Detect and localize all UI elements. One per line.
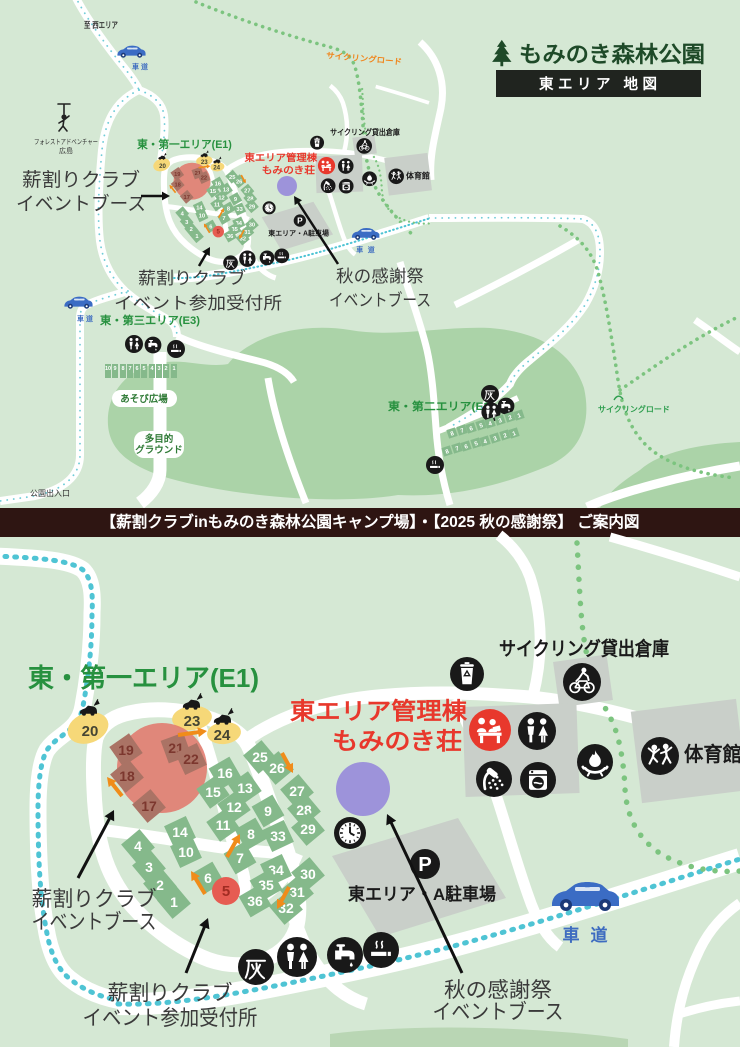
svg-text:あそび広場: あそび広場: [120, 393, 168, 405]
svg-text:車道: 車道: [132, 62, 150, 71]
svg-text:8: 8: [121, 366, 124, 372]
svg-text:東・第二エリア(E2): 東・第二エリア(E2): [388, 399, 494, 413]
svg-text:フォレストアドベンチャー: フォレストアドベンチャー: [34, 138, 98, 146]
svg-text:薪割りクラブ: 薪割りクラブ: [108, 982, 233, 1005]
svg-text:サイクリングロード: サイクリングロード: [598, 404, 670, 414]
svg-text:広島: 広島: [59, 146, 73, 155]
svg-text:イベント参加受付所: イベント参加受付所: [114, 294, 282, 313]
svg-text:5: 5: [142, 366, 145, 372]
svg-text:グラウンド: グラウンド: [135, 444, 183, 456]
svg-text:もみのき森林公園: もみのき森林公園: [519, 42, 705, 67]
svg-text:薪割りクラブ: 薪割りクラブ: [32, 888, 157, 911]
svg-text:【薪割クラブinもみのき森林公園キャンプ場】・【2025 秋: 【薪割クラブinもみのき森林公園キャンプ場】・【2025 秋の感謝祭】 ご案内図: [101, 512, 640, 531]
svg-text:イベントブース: イベントブース: [32, 911, 157, 934]
svg-text:薪割りクラブ: 薪割りクラブ: [22, 168, 140, 191]
svg-text:秋の感謝祭: 秋の感謝祭: [336, 267, 424, 286]
svg-text:イベント参加受付所: イベント参加受付所: [83, 1007, 258, 1030]
svg-text:公園出入口: 公園出入口: [30, 488, 70, 498]
svg-text:2: 2: [164, 366, 167, 372]
svg-text:秋の感謝祭: 秋の感謝祭: [444, 979, 552, 1002]
svg-text:イベントブース: イベントブース: [16, 192, 146, 215]
svg-text:6: 6: [135, 366, 138, 372]
svg-text:東・第三エリア(E3): 東・第三エリア(E3): [100, 313, 200, 327]
svg-text:多目的: 多目的: [145, 433, 174, 445]
svg-text:至 西エリア: 至 西エリア: [84, 20, 118, 30]
svg-text:9: 9: [113, 366, 116, 372]
svg-text:薪割りクラブ: 薪割りクラブ: [138, 268, 246, 288]
svg-text:10: 10: [105, 366, 111, 372]
svg-text:車道: 車道: [77, 314, 95, 323]
svg-text:1: 1: [172, 366, 175, 372]
svg-text:イベントブース: イベントブース: [329, 290, 431, 310]
svg-text:3: 3: [157, 366, 160, 372]
svg-text:イベントブース: イベントブース: [433, 1001, 564, 1024]
svg-text:7: 7: [128, 366, 131, 372]
